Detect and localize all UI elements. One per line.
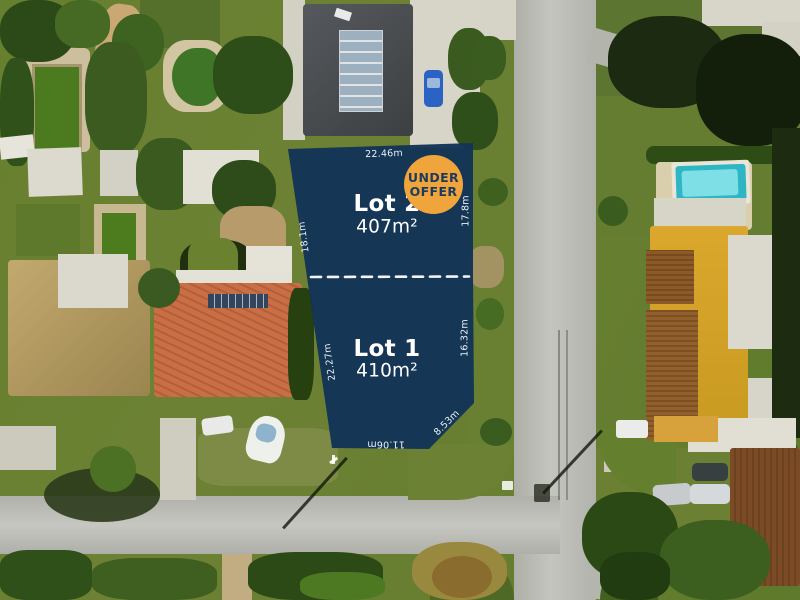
- lot1-area: 410m²: [356, 361, 418, 382]
- lot1-title: Lot 1: [354, 336, 421, 362]
- measurement-lot2-right: 17.8m: [461, 195, 472, 226]
- aerial-lot-photo: 22.46m 18.1m 17.8m 22.27m 16.32m 8.53m 1…: [0, 0, 800, 600]
- under-offer-badge-line2: OFFER: [410, 185, 458, 199]
- lot-boundary-overlay: [0, 0, 800, 600]
- lot2-area: 407m²: [356, 217, 418, 238]
- under-offer-badge: UNDER OFFER: [404, 155, 463, 214]
- under-offer-badge-line1: UNDER: [408, 171, 459, 185]
- measurement-lot2-top: 22.46m: [365, 148, 403, 160]
- measurement-lot1-right: 16.32m: [460, 319, 471, 357]
- measurement-lot1-bottom: 11.06m: [367, 439, 405, 450]
